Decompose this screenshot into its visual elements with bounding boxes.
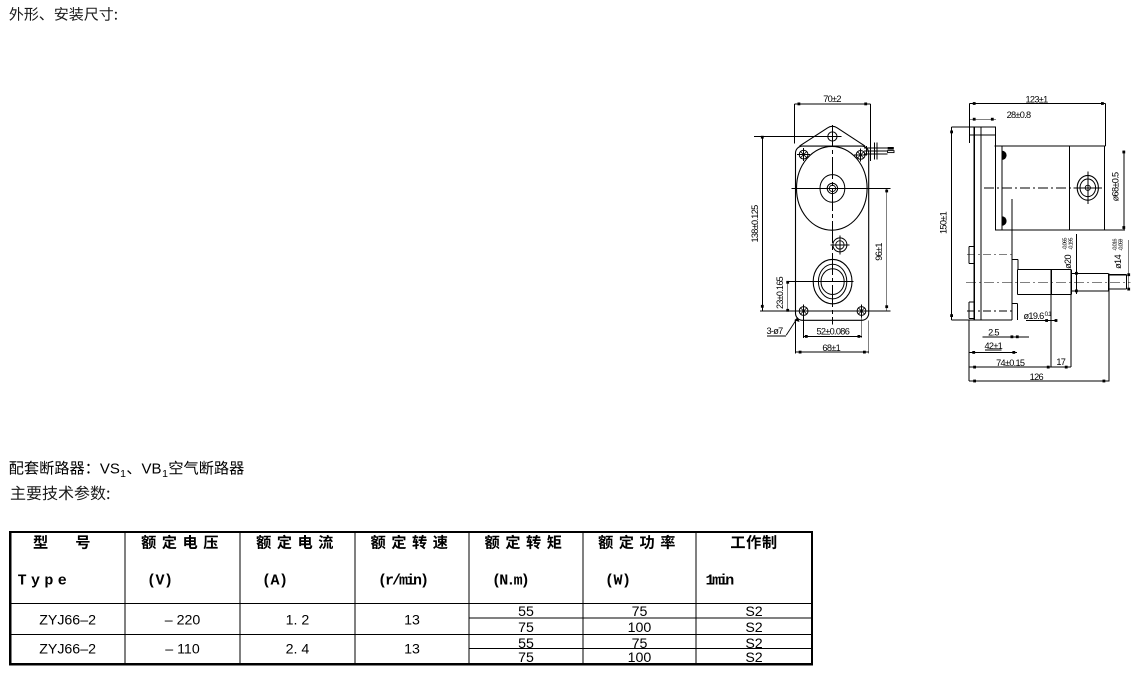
- svg-text:75: 75: [632, 604, 648, 620]
- svg-text:1min: 1min: [706, 572, 735, 589]
- svg-text:100: 100: [628, 650, 652, 666]
- svg-text:13: 13: [404, 641, 420, 657]
- svg-text:2. 4: 2. 4: [286, 641, 310, 657]
- svg-text:2.5: 2.5: [988, 327, 999, 337]
- svg-text:ø68±0.5: ø68±0.5: [1110, 172, 1120, 201]
- svg-text:Type: Type: [18, 572, 72, 589]
- svg-text:ZYJ66–2: ZYJ66–2: [39, 641, 96, 657]
- svg-text:138±0.125: 138±0.125: [750, 205, 760, 243]
- svg-text:– 110: – 110: [165, 641, 200, 657]
- svg-text:(r/min): (r/min): [378, 572, 427, 589]
- svg-text:68±1: 68±1: [822, 343, 840, 353]
- svg-text:23±0.165: 23±0.165: [775, 276, 785, 309]
- svg-text:S2: S2: [745, 604, 762, 620]
- svg-text:(N.m): (N.m): [492, 572, 528, 589]
- svg-text:1: 1: [120, 468, 126, 480]
- svg-text:ø19.6: ø19.6: [1024, 311, 1045, 321]
- svg-text:ø20: ø20: [1063, 255, 1073, 269]
- svg-text:1. 2: 1. 2: [286, 612, 310, 628]
- svg-text:150±1: 150±1: [939, 211, 949, 234]
- svg-text:ø14: ø14: [1113, 255, 1123, 269]
- svg-text:28±0.8: 28±0.8: [1007, 110, 1031, 120]
- svg-text:ZYJ66–2: ZYJ66–2: [39, 612, 96, 628]
- svg-text:VB: VB: [142, 461, 162, 478]
- svg-text:126: 126: [1030, 372, 1044, 382]
- svg-text:-0.059: -0.059: [1119, 239, 1125, 251]
- svg-text:75: 75: [518, 620, 534, 636]
- svg-text:(V): (V): [147, 572, 173, 589]
- svg-text:(A): (A): [262, 572, 288, 589]
- svg-text:74±0.15: 74±0.15: [996, 358, 1025, 368]
- svg-text:3-ø7: 3-ø7: [766, 326, 783, 336]
- svg-text:70±2: 70±2: [823, 94, 841, 104]
- svg-text:42±1: 42±1: [985, 341, 1003, 351]
- svg-text:13: 13: [404, 612, 420, 628]
- svg-text:123±1: 123±1: [1026, 94, 1049, 104]
- svg-text:52±0.086: 52±0.086: [816, 326, 849, 336]
- svg-text:96±1: 96±1: [874, 243, 884, 261]
- svg-text:S2: S2: [745, 650, 762, 666]
- svg-text:– 220: – 220: [165, 612, 201, 628]
- svg-text:VS: VS: [100, 461, 120, 478]
- svg-text:S2: S2: [745, 620, 762, 636]
- svg-text:-0.195: -0.195: [1069, 238, 1075, 250]
- svg-text:75: 75: [518, 650, 534, 666]
- svg-text:1: 1: [162, 468, 168, 480]
- svg-text:17: 17: [1056, 357, 1065, 367]
- svg-text:55: 55: [518, 604, 534, 620]
- svg-text:(W): (W): [605, 572, 631, 589]
- svg-text:100: 100: [628, 620, 652, 636]
